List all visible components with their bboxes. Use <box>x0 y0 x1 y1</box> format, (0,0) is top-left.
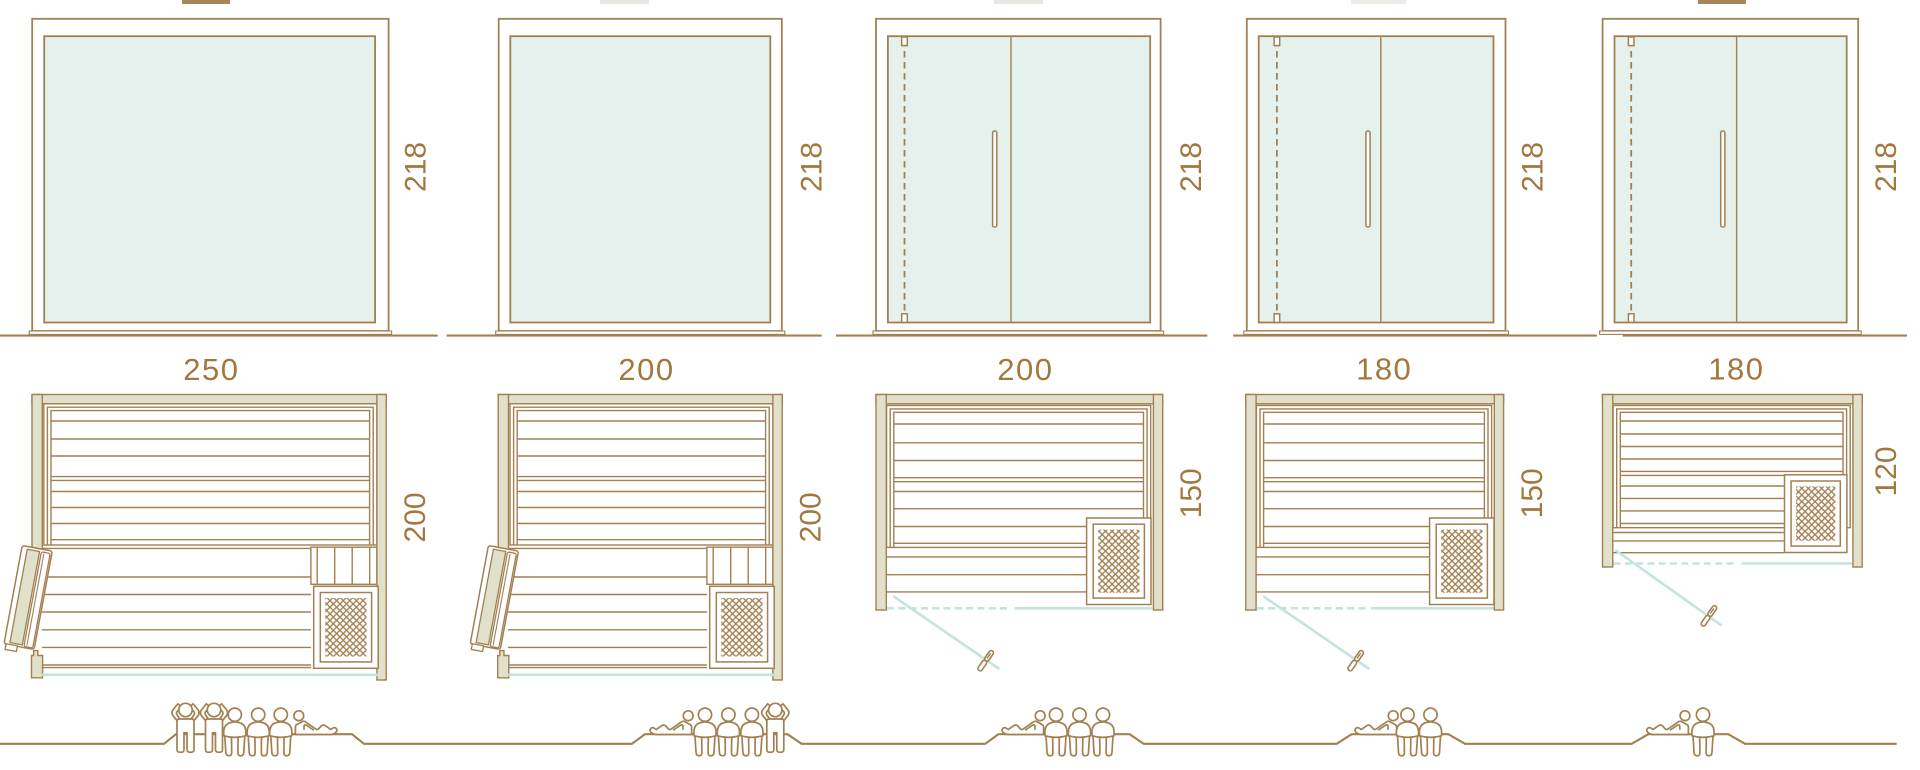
svg-text:200: 200 <box>997 352 1053 387</box>
svg-text:180: 180 <box>1356 352 1412 387</box>
svg-text:180: 180 <box>1708 352 1764 387</box>
svg-text:218: 218 <box>1517 142 1550 192</box>
svg-text:218: 218 <box>1175 142 1208 192</box>
svg-text:218: 218 <box>1870 142 1903 192</box>
svg-text:150: 150 <box>1516 468 1549 518</box>
svg-text:120: 120 <box>1870 446 1903 496</box>
svg-text:200: 200 <box>399 492 432 542</box>
svg-text:200: 200 <box>795 492 828 542</box>
svg-text:150: 150 <box>1175 468 1208 518</box>
svg-text:218: 218 <box>796 142 829 192</box>
svg-text:218: 218 <box>400 142 433 192</box>
svg-text:200: 200 <box>618 352 674 387</box>
svg-text:250: 250 <box>183 352 239 387</box>
